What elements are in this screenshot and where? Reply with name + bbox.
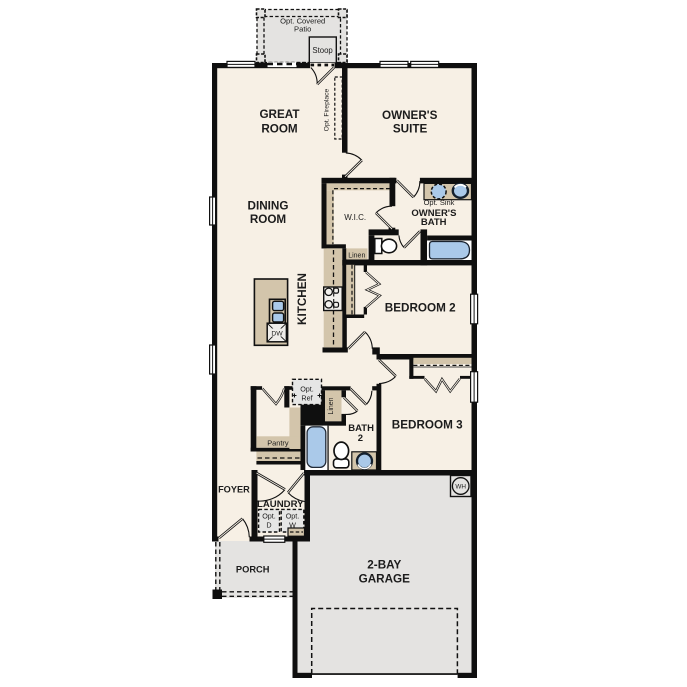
svg-text:D: D [266, 520, 271, 529]
svg-text:2-BAY: 2-BAY [367, 558, 401, 571]
svg-text:Opt.: Opt. [300, 385, 314, 394]
svg-text:Opt.: Opt. [286, 511, 300, 520]
svg-text:Ref: Ref [301, 394, 312, 403]
svg-text:DW: DW [271, 331, 283, 338]
svg-text:ROOM: ROOM [250, 213, 286, 226]
svg-text:Patio: Patio [294, 25, 311, 34]
svg-text:FOYER: FOYER [218, 484, 250, 494]
svg-text:KITCHEN: KITCHEN [296, 273, 309, 325]
svg-text:Opt. Sink: Opt. Sink [424, 198, 455, 207]
svg-text:PORCH: PORCH [236, 565, 270, 575]
svg-text:W.I.C.: W.I.C. [344, 213, 366, 222]
svg-text:GARAGE: GARAGE [359, 573, 411, 586]
svg-text:2: 2 [358, 433, 363, 444]
svg-text:Pantry: Pantry [267, 438, 289, 447]
svg-text:ROOM: ROOM [261, 123, 297, 136]
svg-text:Stoop: Stoop [312, 46, 333, 55]
svg-text:GREAT: GREAT [259, 108, 300, 121]
svg-text:Linen: Linen [328, 397, 335, 414]
svg-text:DINING: DINING [248, 200, 289, 213]
svg-text:BEDROOM 2: BEDROOM 2 [385, 302, 456, 315]
svg-text:BEDROOM 3: BEDROOM 3 [392, 418, 463, 431]
svg-text:OWNER'S: OWNER'S [382, 109, 438, 122]
svg-text:Opt.: Opt. [262, 511, 276, 520]
svg-text:BATH: BATH [421, 217, 447, 228]
svg-text:SUITE: SUITE [393, 122, 428, 135]
svg-text:WH: WH [455, 484, 466, 491]
svg-text:Linen: Linen [348, 253, 365, 260]
svg-text:Opt. Fireplace: Opt. Fireplace [323, 88, 330, 131]
